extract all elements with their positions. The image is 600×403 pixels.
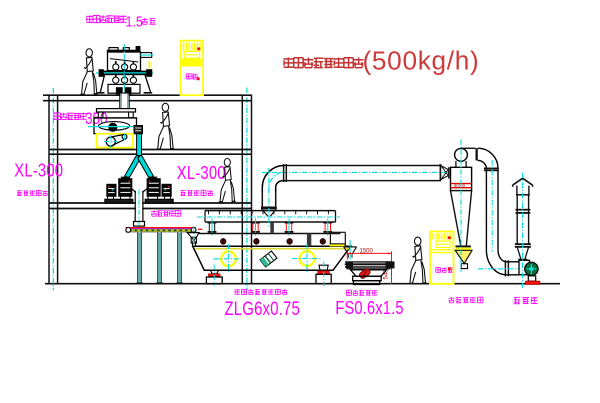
svg-text:ZLG6x0.75: ZLG6x0.75 — [225, 298, 301, 319]
svg-text:Φ600: Φ600 — [454, 183, 466, 188]
svg-text:XL-300: XL-300 — [177, 164, 226, 184]
svg-text:1.5: 1.5 — [126, 14, 144, 30]
svg-text:XL-300: XL-300 — [14, 161, 63, 181]
svg-text:(500kg/h): (500kg/h) — [363, 46, 480, 76]
svg-text:FS0.6x1.5: FS0.6x1.5 — [335, 297, 403, 318]
svg-text:1500: 1500 — [360, 248, 374, 254]
